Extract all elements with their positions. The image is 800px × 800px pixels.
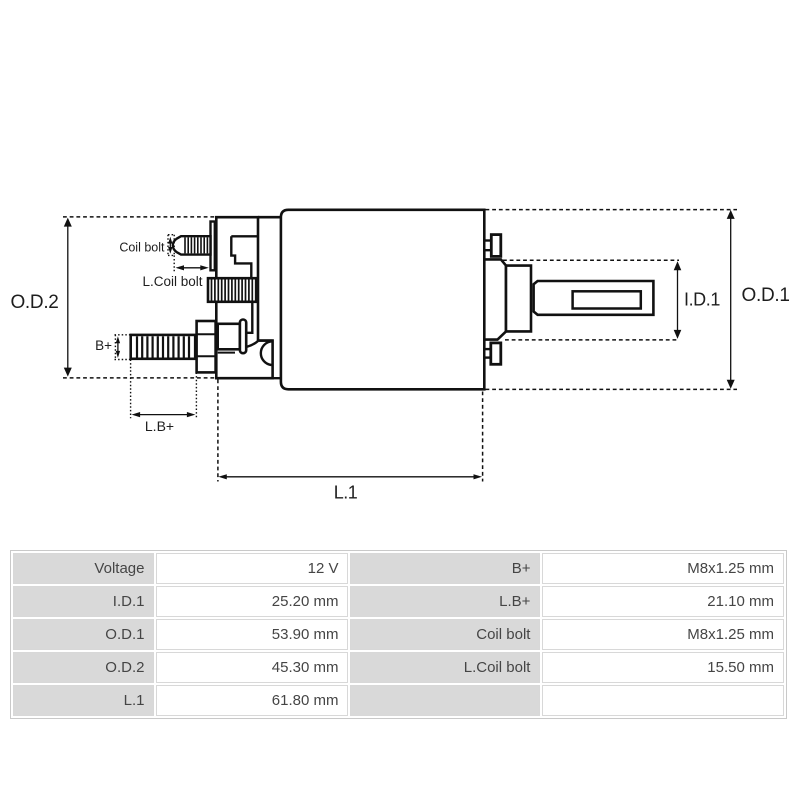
svg-text:Coil bolt: Coil bolt xyxy=(119,240,165,254)
svg-text:L.1: L.1 xyxy=(334,483,358,503)
svg-text:O.D.1: O.D.1 xyxy=(742,285,790,306)
svg-text:L.Coil bolt: L.Coil bolt xyxy=(142,274,202,289)
svg-text:O.D.2: O.D.2 xyxy=(10,292,58,313)
svg-text:B+: B+ xyxy=(95,338,112,353)
svg-text:I.D.1: I.D.1 xyxy=(684,290,720,310)
svg-text:L.B+: L.B+ xyxy=(145,418,174,434)
